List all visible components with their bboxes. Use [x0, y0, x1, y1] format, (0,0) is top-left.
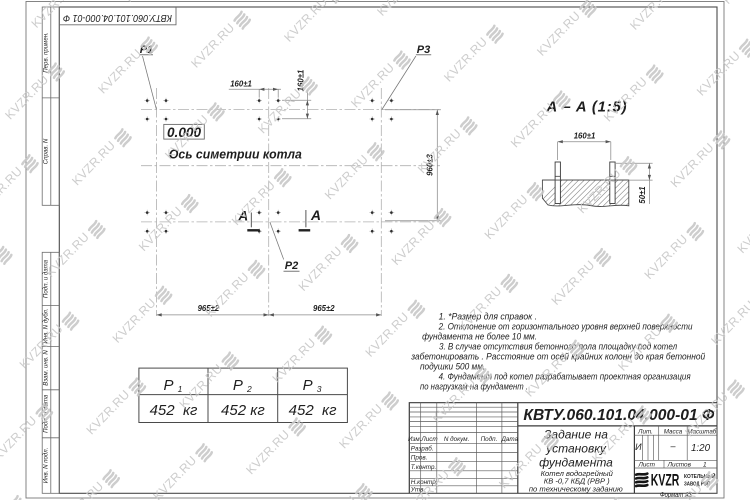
svg-text:Листов: Листов — [667, 462, 692, 469]
svg-text:P: P — [303, 377, 313, 394]
svg-text:KVZR.RU: KVZR.RU — [441, 35, 490, 85]
svg-text:160±1: 160±1 — [230, 80, 252, 89]
svg-text:KVZR.RU: KVZR.RU — [575, 166, 624, 216]
svg-text:P2: P2 — [285, 260, 298, 272]
svg-text:KVZR.RU: KVZR.RU — [177, 361, 226, 411]
svg-text:KVZR.RU: KVZR.RU — [415, 126, 464, 176]
svg-text:KVZR.RU: KVZR.RU — [0, 164, 25, 214]
svg-text:KVZR.RU: KVZR.RU — [57, 479, 106, 500]
svg-text:Т.контр.: Т.контр. — [411, 464, 436, 471]
svg-text:подушки 500 мм.: подушки 500 мм. — [420, 362, 485, 372]
svg-text:KVZR.RU: KVZR.RU — [348, 60, 397, 110]
svg-text:Лист: Лист — [637, 462, 655, 469]
svg-text:Пров.: Пров. — [411, 455, 428, 462]
svg-text:Подп.: Подп. — [481, 435, 498, 443]
svg-text:KVZR.RU: KVZR.RU — [363, 310, 412, 360]
svg-text:50±1: 50±1 — [638, 186, 647, 203]
svg-text:KVZR.RU: KVZR.RU — [694, 49, 743, 99]
svg-text:KVZR.RU: KVZR.RU — [627, 0, 676, 33]
svg-text:P: P — [163, 377, 173, 394]
svg-text:Инв. N подл.: Инв. N подл. — [43, 448, 50, 484]
svg-text:KVZR.RU: KVZR.RU — [642, 232, 691, 282]
svg-text:KVZR.RU: KVZR.RU — [136, 204, 185, 254]
svg-text:Взам. инв. N: Взам. инв. N — [43, 350, 50, 386]
svg-text:Масса: Масса — [664, 428, 683, 435]
svg-text:965±2: 965±2 — [313, 304, 335, 313]
svg-text:KVZR.RU: KVZR.RU — [0, 413, 40, 463]
svg-text:KVZR.RU: KVZR.RU — [84, 387, 133, 437]
svg-text:160±1: 160±1 — [574, 132, 596, 141]
svg-text:KVZR.RU: KVZR.RU — [243, 427, 292, 477]
svg-text:И: И — [635, 442, 642, 452]
svg-text:по техническому заданию: по техническому заданию — [529, 484, 623, 493]
svg-text:KVZR.RU: KVZR.RU — [534, 9, 583, 59]
svg-text:Дата: Дата — [500, 436, 518, 443]
svg-text:KVZR.RU: KVZR.RU — [95, 46, 144, 96]
svg-text:Лит.: Лит. — [637, 428, 653, 435]
svg-text:–: – — [669, 441, 676, 451]
svg-text:KVZR.RU: KVZR.RU — [482, 192, 531, 242]
svg-text:KVZR.RU: KVZR.RU — [255, 86, 304, 136]
svg-text:KVZR.RU: KVZR.RU — [310, 493, 359, 500]
svg-text:КВТУ.060.101.04.000-01 Ф: КВТУ.060.101.04.000-01 Ф — [63, 12, 172, 23]
svg-text:KVZR.RU: KVZR.RU — [203, 270, 252, 320]
svg-text:452 кг: 452 кг — [289, 402, 337, 419]
svg-text:KVZR.RU: KVZR.RU — [735, 206, 750, 256]
svg-text:KVZR.RU: KVZR.RU — [322, 152, 371, 202]
svg-text:фундамента не более 10 мм.: фундамента не более 10 мм. — [422, 332, 537, 342]
svg-text:KVZR: KVZR — [651, 471, 680, 489]
svg-text:1: 1 — [178, 384, 183, 394]
svg-text:KVZR.RU: KVZR.RU — [549, 258, 598, 308]
svg-text:KVZR.RU: KVZR.RU — [122, 0, 171, 5]
svg-text:KVZR.RU: KVZR.RU — [668, 140, 717, 190]
svg-text:КВТУ.060.101.04.000-01 Ф: КВТУ.060.101.04.000-01 Ф — [523, 407, 714, 424]
svg-text:P: P — [233, 377, 243, 394]
svg-text:Перв. примен.: Перв. примен. — [43, 32, 50, 73]
svg-text:1. *Размер для справок .: 1. *Размер для справок . — [439, 312, 537, 322]
svg-text:KVZR.RU: KVZR.RU — [188, 21, 237, 71]
svg-text:KVZR.RU: KVZR.RU — [229, 178, 278, 228]
svg-text:1:20: 1:20 — [691, 443, 711, 454]
svg-text:A: A — [310, 208, 321, 223]
svg-text:KVZR.RU: KVZR.RU — [336, 401, 385, 451]
svg-text:N докум.: N докум. — [444, 435, 469, 443]
svg-text:KVZR.RU: KVZR.RU — [389, 218, 438, 268]
svg-text:KVZR.RU: KVZR.RU — [43, 230, 92, 280]
svg-text:KVZR.RU: KVZR.RU — [110, 296, 159, 346]
svg-text:P3: P3 — [417, 44, 430, 56]
svg-text:KVZR.RU: KVZR.RU — [2, 72, 51, 122]
svg-text:3: 3 — [317, 384, 322, 394]
svg-text:KVZR.RU: KVZR.RU — [708, 298, 750, 348]
svg-text:KVZR.RU: KVZR.RU — [374, 0, 423, 19]
svg-text:Разраб.: Разраб. — [411, 445, 434, 453]
svg-text:2: 2 — [246, 384, 252, 394]
svg-text:Изм.Лист: Изм.Лист — [408, 436, 438, 443]
svg-text:KVZR.RU: KVZR.RU — [508, 100, 557, 150]
svg-text:KVZR.RU: KVZR.RU — [69, 138, 118, 188]
svg-text:1: 1 — [703, 462, 707, 469]
svg-text:Ось симетрии котла: Ось симетрии котла — [169, 147, 302, 161]
svg-text:KVZR.RU: KVZR.RU — [720, 0, 750, 7]
svg-text:Справ. N: Справ. N — [43, 138, 50, 164]
svg-text:452 кг: 452 кг — [221, 402, 265, 419]
svg-text:KVZR.RU: KVZR.RU — [296, 244, 345, 294]
